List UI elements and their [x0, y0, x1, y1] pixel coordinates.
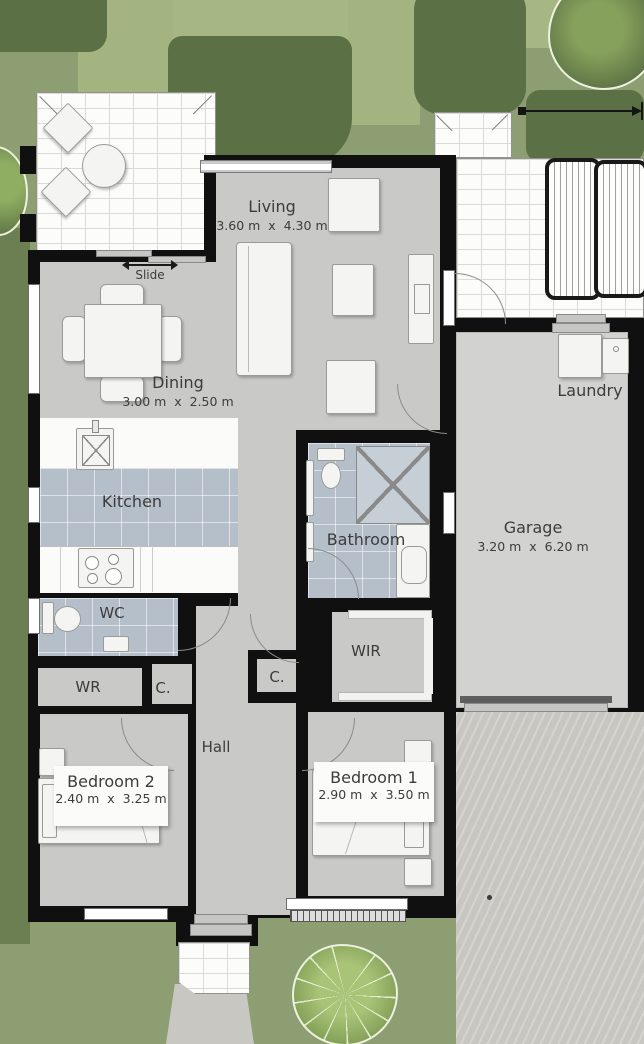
slide-label: Slide — [110, 268, 190, 284]
laundry-door-step — [552, 323, 610, 333]
kitchen-bench-bottom — [40, 546, 238, 593]
bench-seam — [60, 546, 61, 592]
dimension-line — [518, 102, 644, 120]
dining-table — [84, 304, 162, 378]
garage-door-panel — [464, 703, 608, 712]
hedge — [414, 0, 526, 114]
sofa — [236, 242, 292, 376]
rear-door — [194, 914, 248, 924]
living-window — [200, 160, 332, 173]
bedroom2-window — [84, 908, 168, 920]
shower-icon — [356, 446, 430, 524]
lawn-side-strip — [0, 228, 30, 944]
dining-window — [28, 284, 40, 394]
survey-peg — [487, 895, 492, 900]
bathroom-cistern-icon — [317, 448, 345, 461]
wc-window — [28, 598, 40, 634]
washing-machine-icon — [558, 334, 602, 378]
porch-notch — [434, 112, 512, 158]
wir-shelf — [338, 692, 432, 701]
floor-plan: Slide Living 3.60 m x 4.30 m Dining 3.00… — [0, 0, 644, 1044]
wir-shelf — [348, 610, 432, 619]
rear-stoop — [178, 942, 250, 994]
sliding-door — [96, 250, 152, 257]
lawn-light-patch — [348, 0, 420, 125]
room-label-wr: WR — [48, 678, 128, 698]
laundry-door — [556, 314, 606, 323]
room-label-bathroom: Bathroom — [296, 530, 436, 551]
driveway — [456, 712, 644, 1044]
bench-seam — [152, 546, 153, 592]
room-label-bedroom1: Bedroom 1 2.90 m x 3.50 m — [314, 762, 434, 822]
room-label-hall: Hall — [176, 738, 256, 758]
patio-wall-stub — [20, 214, 36, 242]
dining-chair — [62, 316, 86, 362]
room-label-cupboard-a: C. — [133, 679, 193, 699]
hedge — [0, 0, 107, 52]
entry-door-leaf — [443, 270, 455, 326]
corridor-floor — [238, 430, 296, 606]
outdoor-table — [82, 144, 126, 188]
kitchen-sink-basin — [82, 435, 110, 466]
tv-icon — [414, 284, 430, 314]
bench-seam — [140, 546, 141, 592]
rear-door-step — [190, 924, 252, 936]
wc-basin-icon — [103, 636, 129, 652]
room-label-garage: Garage 3.20 m x 6.20 m — [453, 518, 613, 555]
laundry-tub-drain — [613, 346, 619, 352]
tree — [548, 0, 644, 90]
armchair — [326, 360, 376, 414]
cooktop-icon — [78, 548, 134, 588]
privacy-screen — [594, 160, 644, 298]
sofa-back-line — [248, 246, 249, 372]
wir-shelf — [424, 618, 433, 694]
kitchen-window — [28, 487, 40, 523]
garage-door — [460, 696, 612, 703]
bathroom-toilet-icon — [321, 462, 341, 489]
tree — [292, 944, 398, 1044]
laundry-tub-icon — [602, 338, 629, 374]
kitchen-bench-top — [40, 418, 238, 469]
patio-wall-stub — [20, 146, 36, 174]
room-label-laundry: Laundry — [520, 381, 644, 402]
hedge — [526, 90, 644, 162]
room-label-living: Living 3.60 m x 4.30 m — [192, 197, 352, 234]
room-label-wir: WIR — [326, 642, 406, 662]
room-label-wc: WC — [72, 604, 152, 624]
bedside-table — [404, 858, 432, 886]
wc-cistern-icon — [42, 602, 54, 634]
room-label-bedroom2: Bedroom 2 2.40 m x 3.25 m — [54, 766, 168, 826]
bedroom1-window-screen — [290, 910, 406, 922]
privacy-screen — [545, 158, 601, 300]
room-label-kitchen: Kitchen — [62, 492, 202, 513]
room-label-dining: Dining 3.00 m x 2.50 m — [98, 373, 258, 410]
towel-rail-icon — [306, 460, 314, 516]
room-label-cupboard-b: C. — [247, 668, 307, 688]
kitchen-tap-icon — [92, 420, 99, 433]
bedroom1-window — [286, 898, 408, 910]
vanity-basin-icon — [401, 546, 427, 584]
coffee-table — [332, 264, 374, 316]
